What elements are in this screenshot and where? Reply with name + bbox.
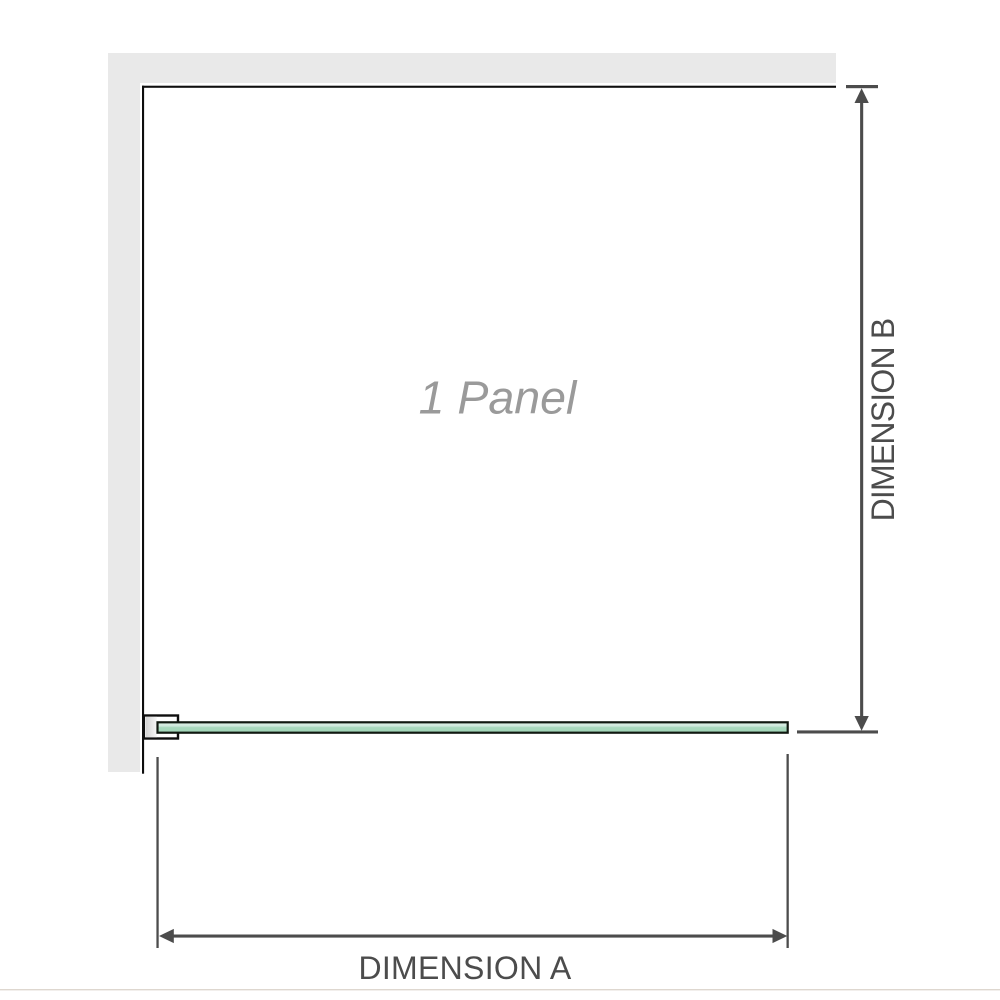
svg-text:1 Panel: 1 Panel bbox=[419, 372, 578, 424]
svg-text:DIMENSION B: DIMENSION B bbox=[865, 319, 901, 522]
svg-text:DIMENSION A: DIMENSION A bbox=[358, 950, 571, 986]
